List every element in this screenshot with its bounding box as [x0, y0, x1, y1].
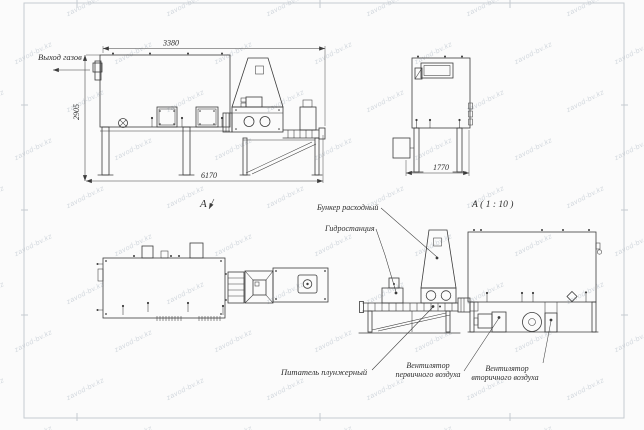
- dimension-1770: 1770: [406, 130, 469, 176]
- plan-furnace: [245, 271, 273, 303]
- dimension-2905: 2905: [72, 55, 100, 181]
- dim-2905-text: 2905: [72, 104, 81, 120]
- side-elevation-view: [93, 53, 325, 176]
- dimension-6170: 6170: [86, 135, 323, 183]
- hydraulic-station-label: Гидростанция: [324, 224, 375, 233]
- side-hatch-boxes: [157, 107, 218, 127]
- detail-chimney: [421, 230, 456, 288]
- gas-outlet-stub: [93, 61, 102, 80]
- view-a-arrow: [209, 199, 214, 209]
- feeder-conveyor: [360, 302, 459, 313]
- detail-a-title: А ( 1 : 10 ): [471, 199, 513, 210]
- callouts-group: Выход газов А А ( 1 : 10 ) Бункер расход…: [38, 52, 551, 382]
- technical-drawing: 3380 2905 6170 1770 Выход газов А: [0, 0, 644, 430]
- furnace-side: [232, 58, 283, 132]
- view-a-label: А: [199, 198, 207, 210]
- base-frame: [468, 302, 598, 332]
- dim-6170-text: 6170: [201, 171, 217, 180]
- primary-air-fan: [474, 312, 506, 332]
- plan-body: [103, 258, 225, 318]
- hydraulic-station-box: [382, 278, 403, 303]
- plunger-feeder-label: Питатель плунжерный: [280, 367, 368, 377]
- end-opening: [415, 63, 453, 79]
- secondary-fan-leader: [543, 321, 551, 363]
- dimension-3380: 3380: [103, 39, 325, 127]
- valve-fitting: [119, 119, 128, 128]
- drawing-sheet: zavod-bv.kzzavod-bv.kzzavod-bv.kzzavod-b…: [0, 0, 644, 430]
- truss-support: [240, 138, 322, 175]
- plan-fan: [273, 268, 328, 302]
- end-side-box: [393, 138, 410, 158]
- end-elevation-view: [393, 56, 473, 173]
- detail-main-body: [468, 229, 602, 302]
- hydraulic-station-leader: [376, 229, 396, 292]
- support-legs: [98, 127, 194, 175]
- secondary-air-fan: [523, 313, 558, 333]
- bunker-box: [300, 107, 316, 130]
- detail-furnace: [421, 288, 456, 303]
- primary-fan-label-1: Вентилятор: [406, 361, 449, 370]
- flange-coupling: [223, 113, 232, 132]
- primary-fan-label-2: первичного воздуха: [395, 370, 460, 379]
- feed-hopper-label: Бункер расходный: [316, 203, 378, 212]
- gas-outlet-label: Выход газов: [38, 52, 82, 62]
- plan-view: [97, 243, 329, 321]
- conveyor-side: [283, 100, 325, 139]
- plan-coupling: [228, 272, 244, 303]
- secondary-fan-label-1: Вентилятор: [485, 364, 528, 373]
- dryer-body: [100, 55, 230, 127]
- secondary-fan-label-2: вторичного воздуха: [471, 373, 538, 382]
- dim-1770-text: 1770: [433, 163, 449, 172]
- detail-view: [359, 229, 602, 333]
- feeder-truss: [359, 311, 460, 333]
- dim-3380-text: 3380: [162, 39, 179, 48]
